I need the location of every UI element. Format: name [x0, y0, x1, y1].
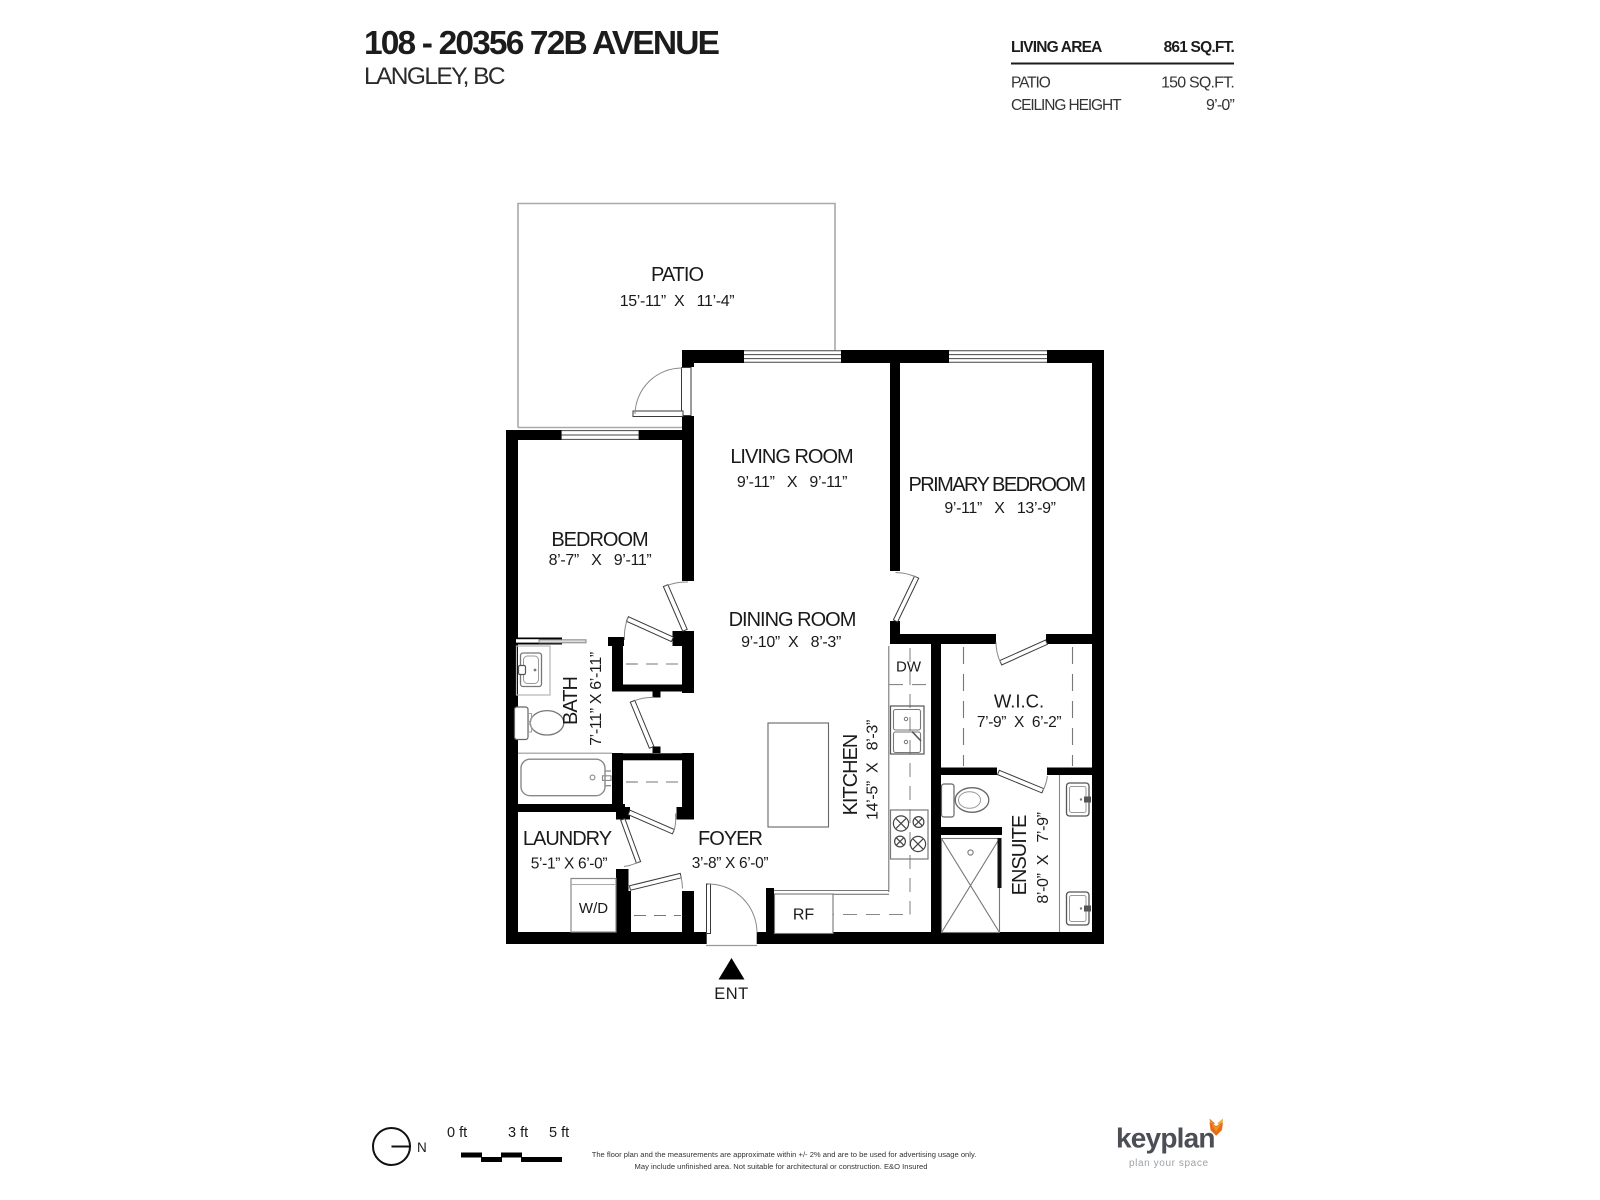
svg-text:8’-0” X 7’-9”: 8’-0” X 7’-9”: [1035, 812, 1052, 903]
svg-text:The floor plan and the measure: The floor plan and the measurements are …: [592, 1150, 977, 1159]
svg-text:BEDROOM: BEDROOM: [551, 529, 648, 551]
svg-text:keyplan: keyplan: [1116, 1123, 1215, 1154]
svg-text:LIVING ROOM: LIVING ROOM: [730, 446, 853, 468]
svg-text:N: N: [417, 1140, 427, 1155]
svg-text:KITCHEN: KITCHEN: [840, 735, 862, 816]
svg-text:9’-0”: 9’-0”: [1206, 97, 1234, 114]
svg-text:W.I.C.: W.I.C.: [994, 691, 1044, 712]
svg-text:5’-1” X 6’-0”: 5’-1” X 6’-0”: [531, 856, 608, 873]
svg-text:7’-11” X 6’-11”: 7’-11” X 6’-11”: [588, 652, 605, 746]
svg-text:DW: DW: [896, 659, 922, 676]
svg-text:15’-11” X 11’-4”: 15’-11” X 11’-4”: [620, 293, 735, 310]
svg-text:ENSUITE: ENSUITE: [1009, 815, 1031, 895]
svg-text:3’-8” X 6’-0”: 3’-8” X 6’-0”: [692, 855, 769, 872]
svg-text:LANGLEY, BC: LANGLEY, BC: [364, 63, 505, 90]
svg-text:3 ft: 3 ft: [508, 1125, 528, 1141]
svg-text:May include unfinished area. N: May include unfinished area. Not suitabl…: [635, 1162, 928, 1171]
svg-text:CEILING HEIGHT: CEILING HEIGHT: [1011, 97, 1122, 114]
svg-text:PATIO: PATIO: [651, 264, 703, 286]
svg-text:W/D: W/D: [579, 900, 608, 917]
svg-text:LAUNDRY: LAUNDRY: [523, 828, 612, 850]
svg-text:861 SQ.FT.: 861 SQ.FT.: [1164, 39, 1235, 56]
svg-text:9’-10” X 8’-3”: 9’-10” X 8’-3”: [741, 634, 841, 651]
svg-text:PRIMARY BEDROOM: PRIMARY BEDROOM: [908, 474, 1085, 496]
svg-text:PATIO: PATIO: [1011, 75, 1051, 92]
svg-text:9’-11” X 13’-9”: 9’-11” X 13’-9”: [944, 500, 1055, 517]
svg-text:7’-9” X 6’-2”: 7’-9” X 6’-2”: [977, 714, 1062, 731]
svg-text:DINING ROOM: DINING ROOM: [729, 609, 856, 631]
svg-text:BATH: BATH: [560, 677, 582, 725]
svg-text:14’-5” X 8’-3”: 14’-5” X 8’-3”: [865, 720, 882, 820]
svg-text:FOYER: FOYER: [698, 828, 762, 850]
svg-text:LIVING AREA: LIVING AREA: [1011, 39, 1102, 56]
svg-text:plan your space: plan your space: [1129, 1158, 1209, 1169]
svg-text:RF: RF: [793, 907, 815, 924]
svg-text:8’-7” X 9’-11”: 8’-7” X 9’-11”: [549, 552, 652, 569]
svg-text:0 ft: 0 ft: [447, 1125, 467, 1141]
svg-text:9’-11” X 9’-11”: 9’-11” X 9’-11”: [737, 474, 847, 491]
svg-text:150 SQ.FT.: 150 SQ.FT.: [1161, 75, 1234, 92]
svg-text:108 - 20356 72B AVENUE: 108 - 20356 72B AVENUE: [364, 25, 720, 62]
svg-text:5 ft: 5 ft: [549, 1125, 569, 1141]
svg-text:ENT: ENT: [714, 985, 749, 1003]
